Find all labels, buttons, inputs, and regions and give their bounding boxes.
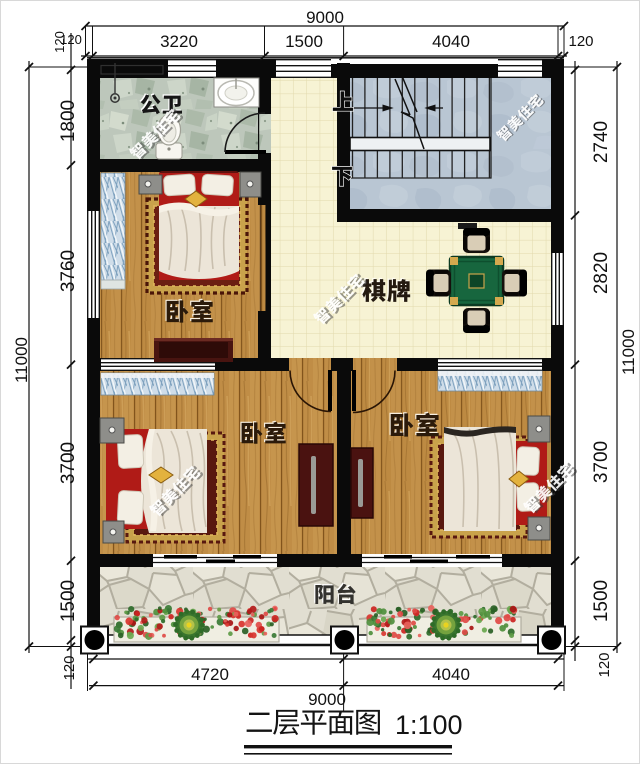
svg-text:1500: 1500 [591,580,612,622]
svg-text:2820: 2820 [591,252,612,294]
svg-text:3220: 3220 [160,32,198,51]
svg-text:11000: 11000 [12,337,31,383]
svg-text:4040: 4040 [432,32,470,51]
svg-text:1800: 1800 [58,100,79,142]
svg-text:2740: 2740 [591,121,612,163]
svg-text:120: 120 [52,31,67,53]
svg-text:9000: 9000 [306,8,344,27]
svg-text:4720: 4720 [191,665,229,684]
svg-text:120: 120 [596,652,613,677]
svg-text:1500: 1500 [58,580,79,622]
svg-text:1500: 1500 [285,32,323,51]
svg-text:11000: 11000 [619,329,638,375]
svg-text:1:100: 1:100 [395,710,463,740]
svg-text:120: 120 [568,33,593,50]
svg-text:4040: 4040 [432,665,470,684]
svg-text:3700: 3700 [58,442,79,484]
svg-text:9000: 9000 [308,690,346,709]
svg-text:120: 120 [61,655,78,680]
svg-text:3700: 3700 [591,441,612,483]
svg-text:3760: 3760 [58,250,79,292]
